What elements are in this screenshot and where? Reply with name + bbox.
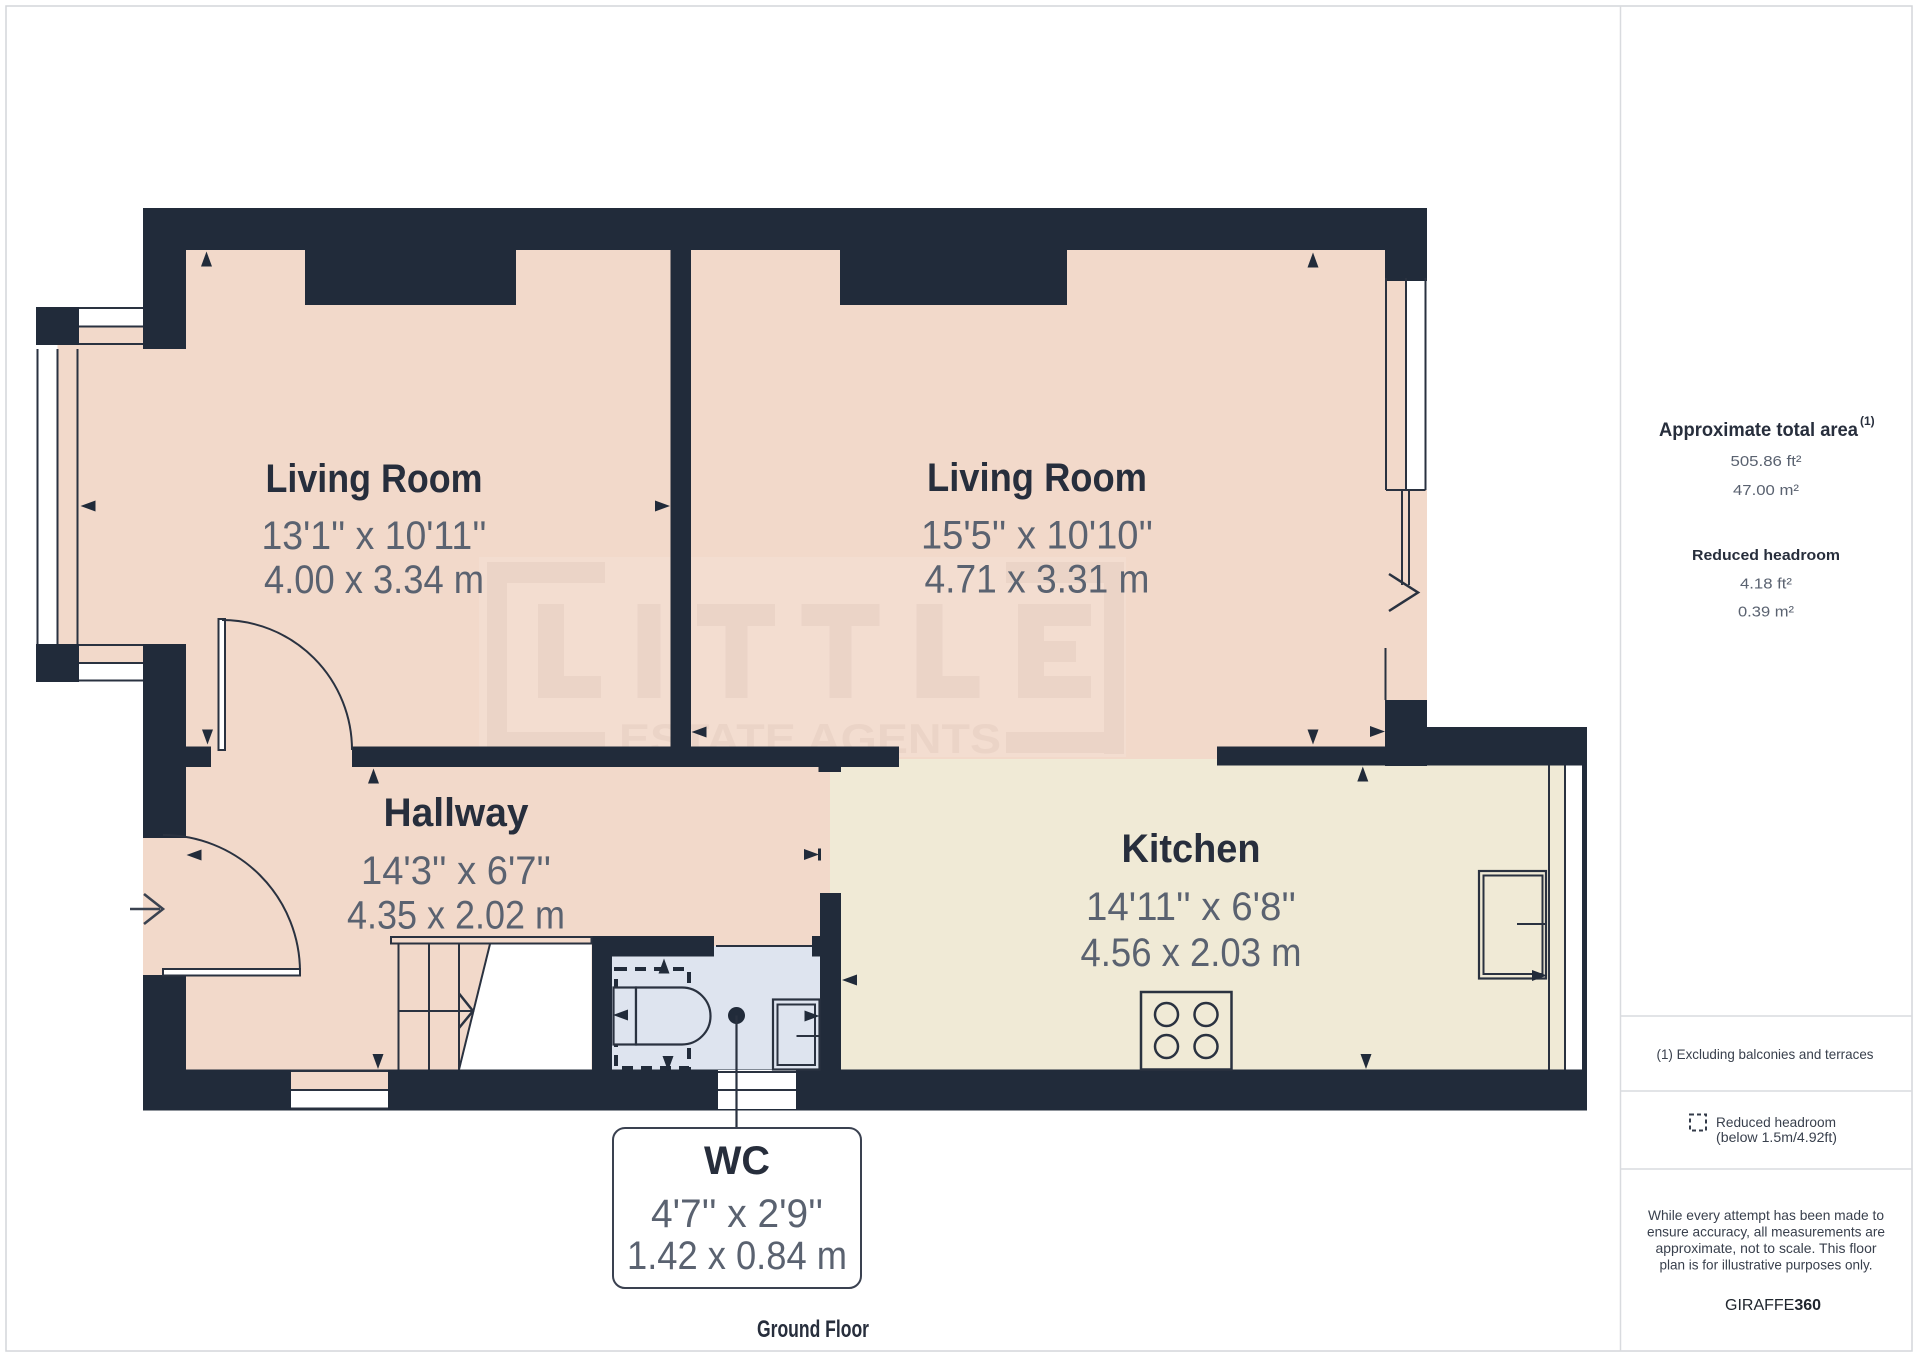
svg-text:(below 1.5m/4.92ft): (below 1.5m/4.92ft) — [1716, 1130, 1837, 1145]
svg-text:While every attempt has been m: While every attempt has been made to — [1648, 1207, 1884, 1223]
svg-text:GIRAFFE360: GIRAFFE360 — [1725, 1297, 1821, 1314]
svg-text:13'1'' x 10'11'': 13'1'' x 10'11'' — [262, 514, 487, 558]
svg-text:14'3'' x 6'7'': 14'3'' x 6'7'' — [361, 849, 551, 893]
svg-text:4.71 x 3.31 m: 4.71 x 3.31 m — [925, 558, 1150, 602]
svg-text:Kitchen: Kitchen — [1122, 827, 1261, 871]
svg-text:Living Room: Living Room — [266, 457, 483, 501]
svg-text:Approximate total area: Approximate total area — [1659, 420, 1858, 441]
svg-text:15'5'' x 10'10'': 15'5'' x 10'10'' — [921, 514, 1153, 558]
svg-text:(1) Excluding balconies and te: (1) Excluding balconies and terraces — [1657, 1046, 1874, 1062]
svg-text:0.39 m²: 0.39 m² — [1738, 604, 1794, 621]
svg-text:4'7'' x 2'9'': 4'7'' x 2'9'' — [651, 1192, 823, 1236]
svg-text:(1): (1) — [1860, 414, 1875, 428]
svg-text:Hallway: Hallway — [384, 791, 530, 835]
svg-text:approximate, not to scale. Thi: approximate, not to scale. This floor — [1656, 1240, 1877, 1256]
svg-text:47.00 m²: 47.00 m² — [1733, 482, 1799, 499]
svg-text:Reduced headroom: Reduced headroom — [1716, 1115, 1836, 1130]
svg-text:4.00 x 3.34 m: 4.00 x 3.34 m — [264, 558, 484, 602]
svg-text:Ground Floor: Ground Floor — [757, 1316, 869, 1343]
svg-text:Living Room: Living Room — [927, 456, 1147, 500]
svg-text:4.18 ft²: 4.18 ft² — [1740, 576, 1792, 593]
svg-text:Reduced headroom: Reduced headroom — [1692, 547, 1840, 564]
svg-text:WC: WC — [704, 1139, 770, 1183]
svg-text:1.42 x 0.84 m: 1.42 x 0.84 m — [627, 1234, 847, 1278]
svg-text:plan is for illustrative purpo: plan is for illustrative purposes only. — [1660, 1257, 1873, 1273]
svg-text:ensure accuracy, all measureme: ensure accuracy, all measurements are — [1647, 1224, 1885, 1240]
svg-text:505.86 ft²: 505.86 ft² — [1731, 453, 1802, 470]
svg-text:4.35 x 2.02 m: 4.35 x 2.02 m — [347, 894, 565, 938]
svg-text:4.56 x 2.03 m: 4.56 x 2.03 m — [1081, 931, 1302, 975]
svg-text:14'11'' x 6'8'': 14'11'' x 6'8'' — [1086, 885, 1296, 929]
